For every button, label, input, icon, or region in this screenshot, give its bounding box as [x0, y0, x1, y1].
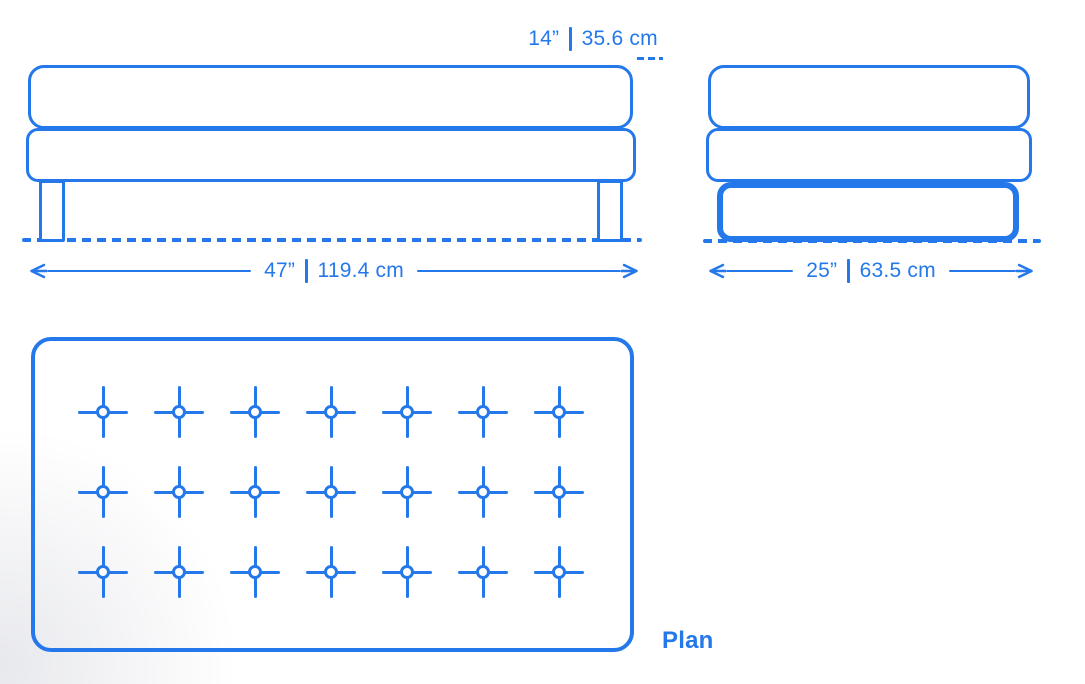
tuft-button-circle: [172, 485, 186, 499]
front-width-imperial-value: 47”: [264, 259, 295, 283]
front-width-dimension: 47” 119.4 cm: [27, 257, 641, 285]
dimension-arrow-right-icon: [621, 261, 641, 281]
tufting-button: [305, 386, 357, 438]
side-depth-imperial-value: 25”: [806, 259, 837, 283]
tufting-button: [229, 386, 281, 438]
front-leg-right: [597, 180, 623, 242]
height-dimension-label: 14” 35.6 cm: [513, 26, 673, 52]
tuft-button-circle: [476, 405, 490, 419]
tufting-button: [533, 546, 585, 598]
tuft-button-circle: [248, 565, 262, 579]
tuft-button-circle: [324, 565, 338, 579]
front-ground-line: [22, 238, 642, 242]
tuft-button-circle: [552, 565, 566, 579]
tufting-button: [305, 466, 357, 518]
height-reference-dashes: [637, 57, 663, 60]
tufting-button: [533, 386, 585, 438]
tuft-button-circle: [96, 565, 110, 579]
front-width-metric-value: 119.4 cm: [318, 259, 404, 283]
tuft-button-circle: [324, 485, 338, 499]
tufting-button: [153, 466, 205, 518]
dimension-line: [726, 270, 793, 273]
dimension-line: [47, 270, 251, 273]
plan-label: Plan: [662, 627, 713, 655]
front-width-dimension-text: 47” 119.4 cm: [251, 259, 417, 283]
tufting-button: [381, 466, 433, 518]
tufting-grid: [77, 386, 585, 598]
height-metric-value: 35.6 cm: [582, 27, 658, 51]
dimension-separator: [305, 259, 308, 283]
dimension-arrow-left-icon: [706, 261, 726, 281]
tufting-button: [381, 386, 433, 438]
tuft-button-circle: [552, 485, 566, 499]
tufting-button: [77, 466, 129, 518]
tufting-button: [153, 386, 205, 438]
dimension-separator: [847, 259, 850, 283]
height-imperial-value: 14”: [528, 27, 559, 51]
front-leg-left: [39, 180, 65, 242]
front-top-cushion: [28, 65, 633, 129]
tufting-button: [229, 466, 281, 518]
side-depth-metric-value: 63.5 cm: [860, 259, 936, 283]
tufting-button: [77, 386, 129, 438]
tufting-button: [305, 546, 357, 598]
tuft-button-circle: [400, 485, 414, 499]
tuft-button-circle: [96, 405, 110, 419]
side-seat-band: [706, 128, 1032, 182]
tufting-button: [153, 546, 205, 598]
dimension-arrow-right-icon: [1016, 261, 1036, 281]
side-base: [717, 182, 1019, 242]
tuft-button-circle: [552, 405, 566, 419]
tufting-button: [533, 466, 585, 518]
front-seat-band: [26, 128, 636, 182]
tuft-button-circle: [248, 405, 262, 419]
tuft-button-circle: [172, 565, 186, 579]
tuft-button-circle: [400, 405, 414, 419]
dimension-line: [949, 270, 1016, 273]
tuft-button-circle: [476, 485, 490, 499]
tuft-button-circle: [476, 565, 490, 579]
dimension-arrow-left-icon: [27, 261, 47, 281]
side-top-cushion: [708, 65, 1030, 129]
tufting-button: [381, 546, 433, 598]
tufting-button: [77, 546, 129, 598]
height-dimension-text: 14” 35.6 cm: [528, 27, 658, 51]
tuft-button-circle: [400, 565, 414, 579]
side-depth-dimension-text: 25” 63.5 cm: [793, 259, 949, 283]
tuft-button-circle: [324, 405, 338, 419]
dimension-line: [417, 270, 621, 273]
side-depth-dimension: 25” 63.5 cm: [706, 257, 1036, 285]
tufting-button: [457, 466, 509, 518]
dimension-separator: [569, 27, 572, 51]
tufting-button: [457, 546, 509, 598]
tuft-button-circle: [248, 485, 262, 499]
tufting-button: [457, 386, 509, 438]
tufting-button: [229, 546, 281, 598]
tuft-button-circle: [96, 485, 110, 499]
tuft-button-circle: [172, 405, 186, 419]
